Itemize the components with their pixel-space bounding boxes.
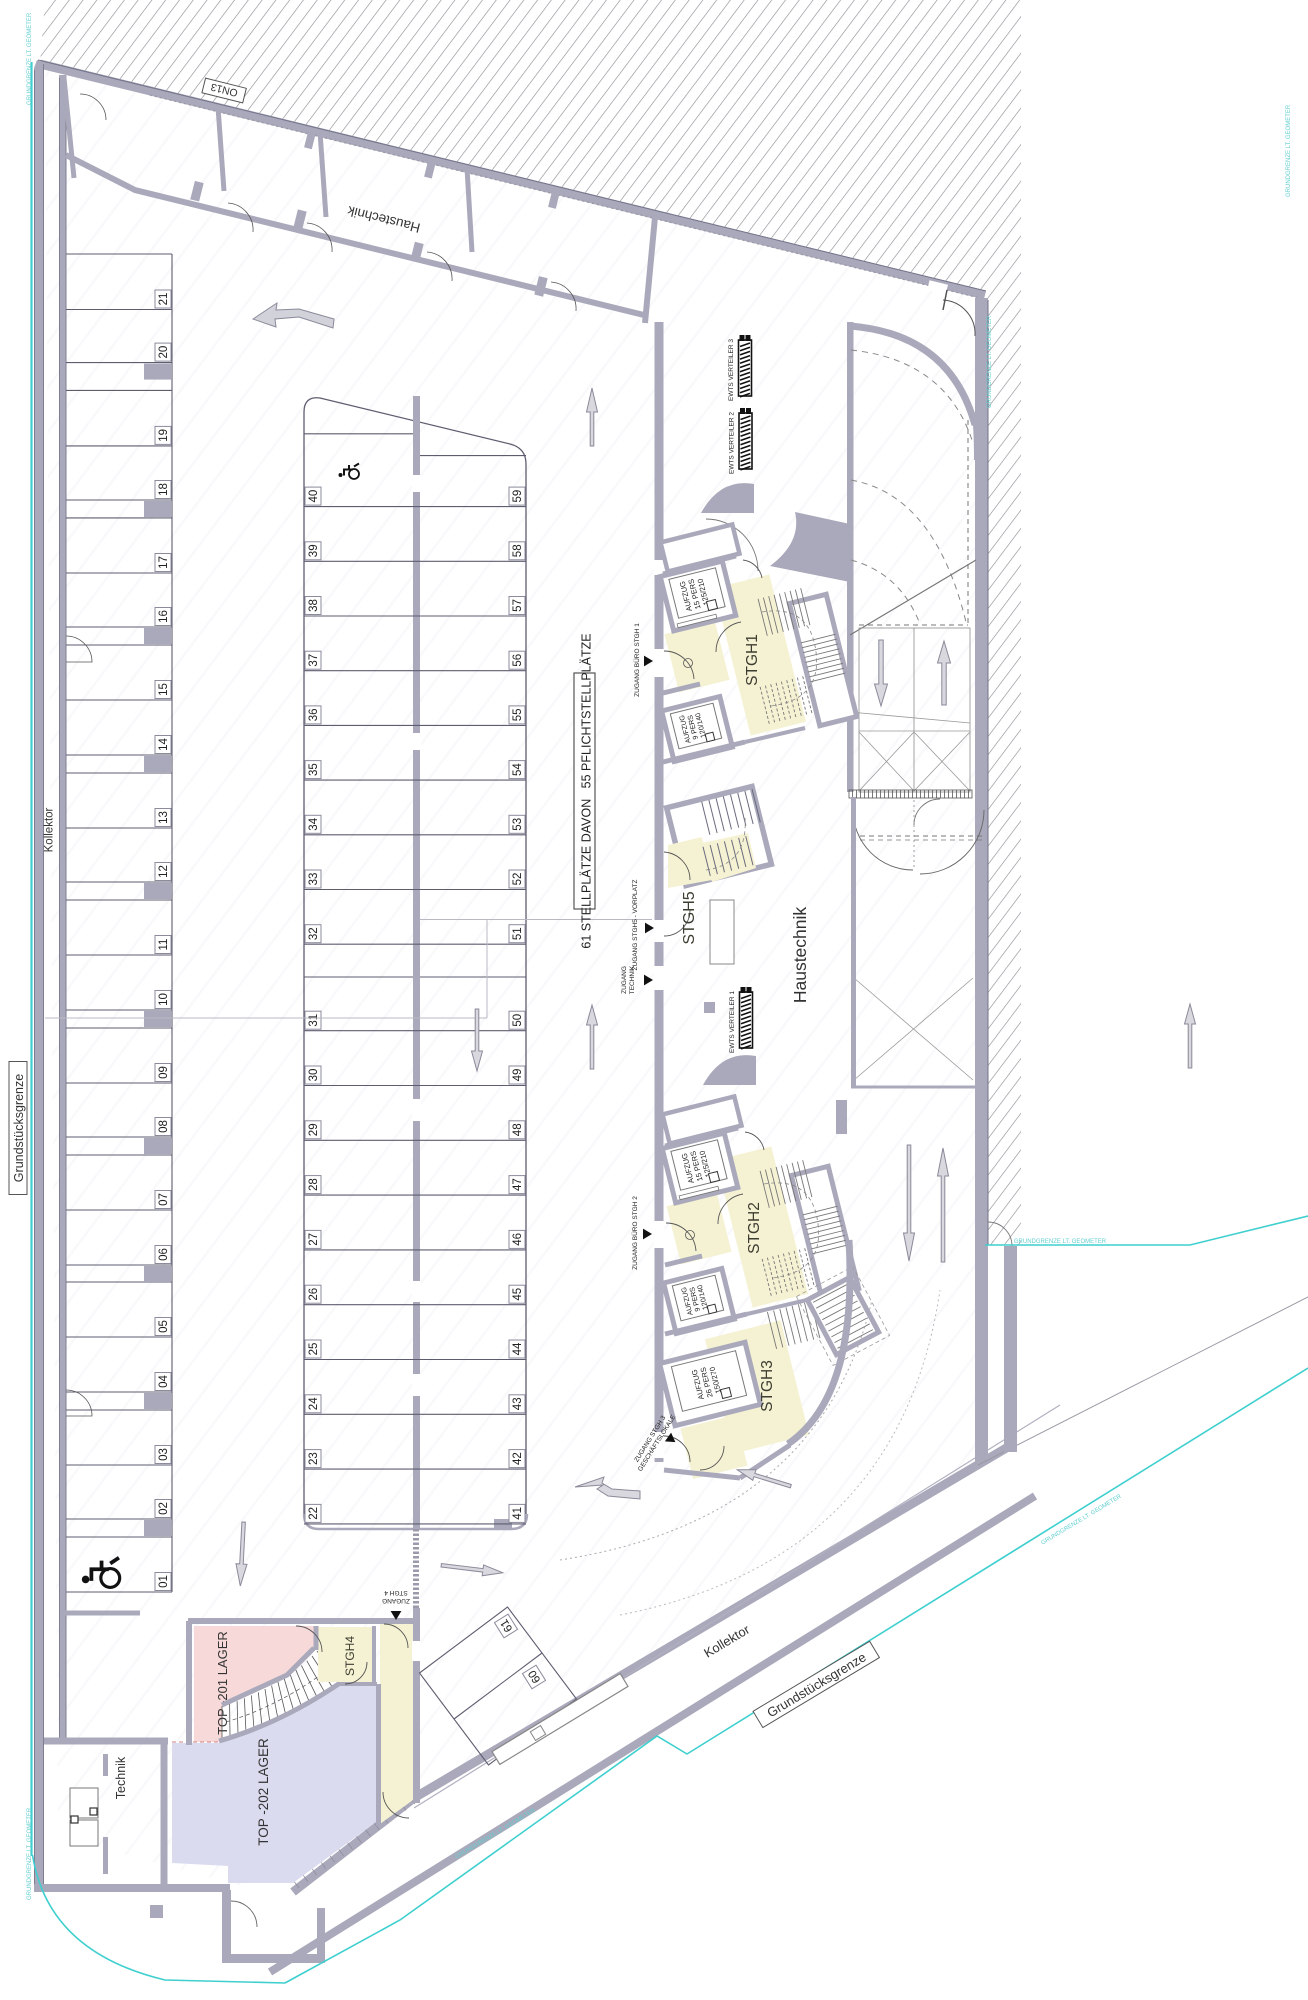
- svg-text:GRUNDGRENZE LT. GEOMETER: GRUNDGRENZE LT. GEOMETER: [1286, 104, 1292, 197]
- svg-text:43: 43: [512, 1397, 524, 1410]
- svg-text:13: 13: [158, 811, 170, 824]
- svg-text:27: 27: [308, 1233, 320, 1246]
- svg-text:Technik: Technik: [114, 1756, 128, 1799]
- svg-text:17: 17: [158, 556, 170, 569]
- svg-text:35: 35: [308, 763, 320, 776]
- svg-text:STGH5: STGH5: [681, 891, 698, 944]
- svg-text:03: 03: [158, 1448, 170, 1461]
- svg-text:58: 58: [512, 544, 524, 557]
- svg-text:18: 18: [158, 483, 170, 496]
- svg-text:Haustechnik: Haustechnik: [790, 907, 810, 1004]
- svg-text:54: 54: [512, 763, 524, 776]
- svg-text:42: 42: [512, 1452, 524, 1465]
- svg-text:GRUNDGRENZE LT. GEOMETER: GRUNDGRENZE LT. GEOMETER: [27, 12, 33, 105]
- svg-text:TOP -202 LAGER: TOP -202 LAGER: [256, 1738, 271, 1846]
- svg-text:19: 19: [158, 429, 170, 442]
- svg-text:20: 20: [158, 346, 170, 359]
- svg-text:34: 34: [308, 817, 320, 830]
- svg-text:06: 06: [158, 1248, 170, 1261]
- svg-text:40: 40: [308, 490, 320, 503]
- svg-text:37: 37: [308, 654, 320, 667]
- svg-text:STGH1: STGH1: [744, 634, 761, 686]
- svg-text:22: 22: [308, 1507, 320, 1520]
- svg-text:02: 02: [158, 1502, 170, 1515]
- svg-text:ZUGANG: ZUGANG: [621, 966, 628, 994]
- svg-text:61 STELLPLÄTZE DAVON 55 PFLI: 61 STELLPLÄTZE DAVON 55 PFLICHTSTELLPLÄT…: [580, 633, 594, 948]
- svg-text:11: 11: [158, 939, 170, 951]
- svg-text:49: 49: [512, 1069, 524, 1082]
- svg-text:59: 59: [512, 490, 524, 503]
- svg-text:46: 46: [512, 1233, 524, 1246]
- svg-text:16: 16: [158, 610, 170, 623]
- svg-text:12: 12: [158, 865, 170, 878]
- svg-text:32: 32: [308, 927, 320, 940]
- svg-text:STGH2: STGH2: [746, 1202, 763, 1254]
- svg-text:57: 57: [512, 599, 524, 612]
- svg-text:48: 48: [512, 1123, 524, 1136]
- svg-text:TOP -201 LAGER: TOP -201 LAGER: [215, 1631, 230, 1735]
- svg-text:ZUGANG STGH5 - VORPLATZ: ZUGANG STGH5 - VORPLATZ: [632, 880, 639, 971]
- svg-text:41: 41: [512, 1507, 524, 1520]
- svg-text:39: 39: [308, 544, 320, 557]
- svg-text:30: 30: [308, 1069, 320, 1082]
- svg-text:ZUGANG: ZUGANG: [382, 1597, 410, 1604]
- svg-text:24: 24: [308, 1397, 320, 1410]
- svg-text:45: 45: [512, 1288, 524, 1301]
- svg-text:23: 23: [308, 1452, 320, 1465]
- svg-text:15: 15: [158, 683, 170, 696]
- svg-text:50: 50: [512, 1014, 524, 1027]
- svg-text:ZUGANG BÜRO STGH 2: ZUGANG BÜRO STGH 2: [631, 1196, 639, 1270]
- svg-text:09: 09: [158, 1066, 170, 1079]
- svg-text:01: 01: [158, 1575, 170, 1588]
- svg-text:51: 51: [512, 927, 524, 940]
- svg-text:38: 38: [308, 599, 320, 612]
- svg-text:36: 36: [308, 709, 320, 722]
- svg-text:55: 55: [512, 709, 524, 722]
- svg-text:52: 52: [512, 873, 524, 886]
- svg-text:08: 08: [158, 1120, 170, 1133]
- svg-text:29: 29: [308, 1123, 320, 1136]
- svg-text:EWTS VERTEILER 3: EWTS VERTEILER 3: [728, 339, 735, 401]
- svg-text:STGH 4: STGH 4: [384, 1589, 408, 1596]
- svg-text:31: 31: [308, 1014, 320, 1027]
- svg-text:GRUNDGRENZE LT. GEOMETER: GRUNDGRENZE LT. GEOMETER: [1014, 1239, 1107, 1245]
- svg-text:47: 47: [512, 1178, 524, 1191]
- svg-text:21: 21: [158, 293, 170, 306]
- svg-text:TECHNIK: TECHNIK: [629, 965, 636, 994]
- svg-text:07: 07: [158, 1193, 170, 1206]
- svg-text:10: 10: [158, 993, 170, 1006]
- svg-text:44: 44: [512, 1342, 524, 1355]
- svg-text:56: 56: [512, 654, 524, 667]
- svg-text:Kollektor: Kollektor: [44, 807, 56, 852]
- svg-text:GRUNDGRENZE LT. GEOMETER: GRUNDGRENZE LT. GEOMETER: [987, 315, 993, 408]
- svg-text:33: 33: [308, 873, 320, 886]
- svg-text:Grundstücksgrenze: Grundstücksgrenze: [12, 1074, 26, 1182]
- svg-text:ZUGANG BÜRO STGH 1: ZUGANG BÜRO STGH 1: [633, 623, 641, 697]
- svg-text:GRUNDGRENZE LT. GEOMETER: GRUNDGRENZE LT. GEOMETER: [27, 1807, 33, 1900]
- svg-text:STGH3: STGH3: [759, 1360, 776, 1412]
- svg-text:05: 05: [158, 1320, 170, 1333]
- svg-text:28: 28: [308, 1178, 320, 1191]
- svg-text:STGH4: STGH4: [343, 1636, 357, 1676]
- svg-text:EWTS VERTEILER 1: EWTS VERTEILER 1: [729, 991, 736, 1053]
- svg-text:14: 14: [158, 738, 170, 751]
- svg-text:26: 26: [308, 1288, 320, 1301]
- svg-text:EWTS VERTEILER 2: EWTS VERTEILER 2: [729, 412, 736, 474]
- svg-text:25: 25: [308, 1343, 320, 1356]
- svg-text:53: 53: [512, 818, 524, 831]
- svg-text:04: 04: [158, 1375, 170, 1388]
